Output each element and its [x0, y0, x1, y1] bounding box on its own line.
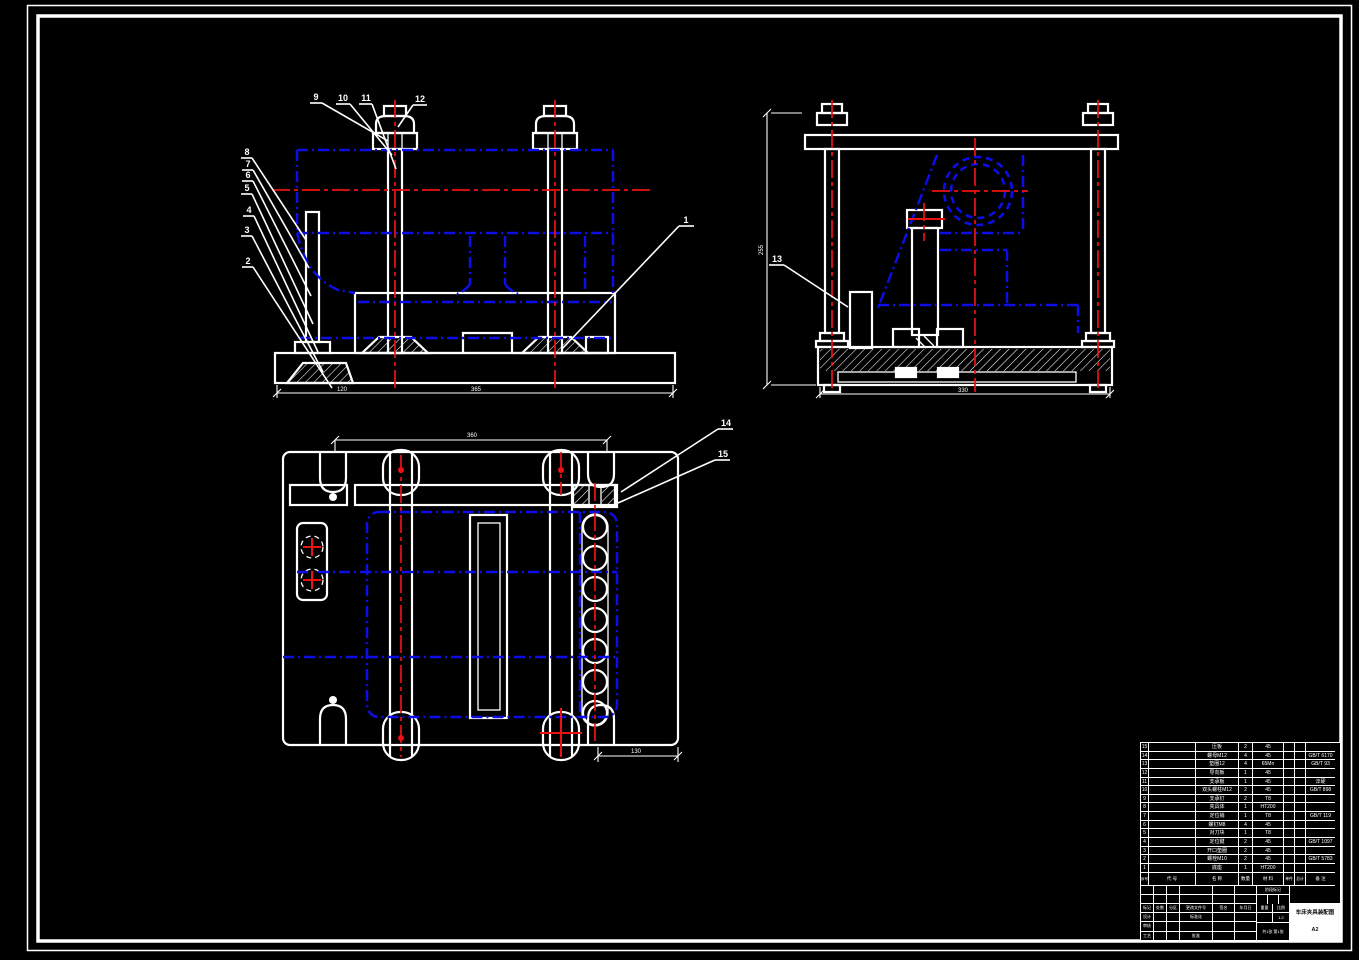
bom-header-total: 总计 [1295, 873, 1306, 886]
title-block-title-zone: 车床夹具装配图 A2 [1290, 886, 1340, 942]
plan-dim-width: 360 [467, 433, 478, 439]
bom-cell-qty: 4 [1239, 752, 1253, 761]
bom-cell-name: 双头螺柱M12 [1196, 786, 1239, 795]
bom-cell-remark [1306, 821, 1335, 830]
bom-cell-no: 12 [1141, 769, 1149, 778]
bom-cell-name: 底座 [1196, 864, 1239, 873]
bom-cell-total [1295, 829, 1306, 838]
bom-cell-remark [1306, 847, 1335, 856]
bom-cell-total [1295, 812, 1306, 821]
bom-cell-material: 45 [1253, 778, 1284, 787]
bom-cell-no: 5 [1141, 829, 1149, 838]
rev-mark: 标记 [1141, 904, 1154, 913]
bom-cell-no: 8 [1141, 803, 1149, 812]
role-standard: 标准化 [1180, 913, 1213, 922]
bom-cell-unit [1284, 786, 1295, 795]
drawing-title-box: 车床夹具装配图 [1290, 904, 1340, 921]
callout-15: 15 [718, 449, 728, 459]
bom-row: 12导向板145 [1141, 769, 1340, 778]
bom-cell-unit [1284, 795, 1295, 804]
bom-cell-unit [1284, 812, 1295, 821]
bom-cell-code [1149, 803, 1196, 812]
bom-cell-total [1295, 847, 1306, 856]
bom-cell-qty: 2 [1239, 855, 1253, 864]
bom-cell-qty: 2 [1239, 743, 1253, 752]
side-base [818, 347, 1112, 392]
bom-cell-total [1295, 821, 1306, 830]
bom-cell-no: 7 [1141, 812, 1149, 821]
callout-10: 10 [338, 93, 348, 103]
bom-cell-unit [1284, 864, 1295, 873]
side-dim-width: 330 [958, 388, 969, 394]
bom-cell-remark: 淬硬 [1306, 778, 1335, 787]
bom-cell-total [1295, 795, 1306, 804]
bom-cell-material: T8 [1253, 812, 1284, 821]
bom-cell-name: 开口垫圈 [1196, 847, 1239, 856]
bom-row: 7定位销1T8GB/T 119 [1141, 812, 1340, 821]
title-block: 标记 处数 分区 更改文件号 签名 年月日 设计 标准化 审核 工艺 [1141, 886, 1340, 942]
bom-cell-qty: 1 [1239, 778, 1253, 787]
bom-header-remark: 备 注 [1306, 873, 1335, 886]
bom-cell-no: 10 [1141, 786, 1149, 795]
bom-cell-material: T8 [1253, 829, 1284, 838]
bom-row: 8夹具体1HT200 [1141, 803, 1340, 812]
callout-1: 1 [683, 215, 688, 225]
side-dim-height: 255 [759, 244, 765, 255]
bom-cell-unit [1284, 821, 1295, 830]
bom-cell-unit [1284, 855, 1295, 864]
bom-cell-name: 定位键 [1196, 838, 1239, 847]
bom-cell-code [1149, 838, 1196, 847]
rev-sign: 签名 [1213, 904, 1235, 913]
bom-cell-qty: 2 [1239, 786, 1253, 795]
bom-cell-no: 15 [1141, 743, 1149, 752]
bom-cell-unit [1284, 829, 1295, 838]
bom-cell-name: 对刀块 [1196, 829, 1239, 838]
bom-cell-qty: 4 [1239, 821, 1253, 830]
bom-cell-name: 定位销 [1196, 812, 1239, 821]
bom-header-row: 序号 代 号 名 称 数量 材 料 单件 总计 备 注 [1141, 873, 1340, 886]
bom-cell-qty: 1 [1239, 829, 1253, 838]
bom-cell-unit [1284, 838, 1295, 847]
bom-cell-no: 1 [1141, 864, 1149, 873]
bom-cell-total [1295, 838, 1306, 847]
rev-date: 年月日 [1235, 904, 1257, 913]
bom-cell-remark: GB/T 93 [1306, 760, 1335, 769]
role-check: 审核 [1141, 922, 1154, 932]
stage-label: 阶段标记 [1257, 886, 1290, 895]
bom-cell-remark: GB/T 1097 [1306, 838, 1335, 847]
checker-row: 审核 [1141, 922, 1257, 932]
title-block-revision-grid: 标记 处数 分区 更改文件号 签名 年月日 设计 标准化 审核 工艺 [1141, 886, 1257, 942]
scale-value: 1:2 [1273, 913, 1290, 923]
bom-cell-remark: GB/T 119 [1306, 812, 1335, 821]
drawing-title: 车床夹具装配图 [1290, 904, 1340, 920]
bom-cell-code [1149, 760, 1196, 769]
callout-6: 6 [245, 170, 250, 180]
bom-and-title-block: 15压板24514螺母M12445GB/T 617013垫圈12465MnGB/… [1140, 742, 1341, 941]
bom-cell-qty: 1 [1239, 769, 1253, 778]
bom-cell-no: 11 [1141, 778, 1149, 787]
bom-cell-qty: 2 [1239, 838, 1253, 847]
bom-header-name: 名 称 [1196, 873, 1239, 886]
bom-row: 2螺栓M10245GB/T 5783 [1141, 855, 1340, 864]
sheet-size-box: A2 [1290, 921, 1340, 940]
callout-14: 14 [721, 418, 731, 428]
bom-row: 1底座1HT200 [1141, 864, 1340, 873]
bom-cell-material: 45 [1253, 752, 1284, 761]
bom-header-code: 代 号 [1149, 873, 1196, 886]
role-design: 设计 [1141, 913, 1154, 922]
bom-cell-code [1149, 786, 1196, 795]
bom-cell-name: 支承钉 [1196, 795, 1239, 804]
drawing-sheet: { "sheet": { "background": "#000000", "l… [0, 0, 1359, 960]
bom-cell-code [1149, 855, 1196, 864]
bom-cell-name: 螺钉M8 [1196, 821, 1239, 830]
callout-5: 5 [244, 183, 249, 193]
bom-cell-code [1149, 752, 1196, 761]
bom-cell-name: 支承板 [1196, 778, 1239, 787]
bom-row: 9支承钉2T8 [1141, 795, 1340, 804]
bom-cell-remark: GB/T 6170 [1306, 752, 1335, 761]
sheet-info: 共1张 第1张 [1257, 923, 1290, 942]
front-dim-b: 365 [471, 387, 482, 393]
sheet-size: A2 [1290, 921, 1340, 940]
bom-header-qty: 数量 [1239, 873, 1253, 886]
bom-cell-name: 压板 [1196, 743, 1239, 752]
bom-cell-material: HT200 [1253, 803, 1284, 812]
callout-4: 4 [246, 205, 251, 215]
bom-row: 13垫圈12465MnGB/T 93 [1141, 760, 1340, 769]
callout-13: 13 [772, 254, 782, 264]
bom-cell-total [1295, 786, 1306, 795]
bom-cell-name: 螺栓M10 [1196, 855, 1239, 864]
bom-cell-qty: 1 [1239, 803, 1253, 812]
bom-row: 5对刀块1T8 [1141, 829, 1340, 838]
bom-cell-material: 45 [1253, 769, 1284, 778]
callout-2: 2 [245, 256, 250, 266]
bom-cell-code [1149, 795, 1196, 804]
bom-cell-unit [1284, 769, 1295, 778]
bom-cell-code [1149, 847, 1196, 856]
bom-cell-remark [1306, 769, 1335, 778]
bom-cell-unit [1284, 847, 1295, 856]
role-process: 工艺 [1141, 932, 1154, 942]
bom-cell-total [1295, 743, 1306, 752]
bom-row: 14螺母M12445GB/T 6170 [1141, 752, 1340, 761]
bom-cell-code [1149, 769, 1196, 778]
bom-cell-total [1295, 769, 1306, 778]
bom-row: 15压板245 [1141, 743, 1340, 752]
front-dim-a: 120 [337, 387, 348, 393]
bom-cell-remark [1306, 795, 1335, 804]
bom-cell-name: 导向板 [1196, 769, 1239, 778]
designer-row: 设计 标准化 [1141, 913, 1257, 922]
bom-cell-material: 45 [1253, 855, 1284, 864]
bom-row: 10双头螺柱M12245GB/T 898 [1141, 786, 1340, 795]
weight-label: 重量 [1257, 904, 1273, 913]
process-row: 工艺 批准 [1141, 932, 1257, 942]
bom-cell-qty: 1 [1239, 864, 1253, 873]
bom-cell-total [1295, 864, 1306, 873]
bom-cell-code [1149, 829, 1196, 838]
role-approve: 批准 [1180, 932, 1213, 942]
bom-cell-remark [1306, 864, 1335, 873]
bom-cell-remark [1306, 829, 1335, 838]
bom-cell-code [1149, 821, 1196, 830]
bom-cell-remark: GB/T 5783 [1306, 855, 1335, 864]
bom-cell-unit [1284, 760, 1295, 769]
bom-cell-material: 45 [1253, 847, 1284, 856]
bom-cell-qty: 4 [1239, 760, 1253, 769]
bom-cell-code [1149, 812, 1196, 821]
bom-cell-remark [1306, 803, 1335, 812]
bom-cell-name: 夹具体 [1196, 803, 1239, 812]
bom-cell-material: T8 [1253, 795, 1284, 804]
callout-3: 3 [244, 225, 249, 235]
bom-cell-no: 6 [1141, 821, 1149, 830]
bom-cell-unit [1284, 778, 1295, 787]
revision-header-row: 标记 处数 分区 更改文件号 签名 年月日 [1141, 904, 1257, 913]
bom-cell-qty: 2 [1239, 847, 1253, 856]
bom-rows: 15压板24514螺母M12445GB/T 617013垫圈12465MnGB/… [1141, 743, 1340, 873]
bom-header-material: 材 料 [1253, 873, 1284, 886]
bom-cell-total [1295, 778, 1306, 787]
bom-cell-unit [1284, 743, 1295, 752]
bom-row: 3开口垫圈245 [1141, 847, 1340, 856]
bom-header-no: 序号 [1141, 873, 1149, 886]
bom-cell-no: 9 [1141, 795, 1149, 804]
bom-header-unit: 单件 [1284, 873, 1295, 886]
callout-11: 11 [361, 93, 371, 103]
callout-9: 9 [313, 92, 318, 102]
bom-cell-name: 螺母M12 [1196, 752, 1239, 761]
bom-cell-material: 45 [1253, 743, 1284, 752]
bom-cell-qty: 2 [1239, 795, 1253, 804]
bom-cell-code [1149, 864, 1196, 873]
bom-cell-unit [1284, 803, 1295, 812]
rev-count: 处数 [1154, 904, 1167, 913]
bom-cell-remark [1306, 743, 1335, 752]
bom-cell-total [1295, 752, 1306, 761]
bom-cell-no: 14 [1141, 752, 1149, 761]
bom-cell-code [1149, 743, 1196, 752]
bom-cell-code [1149, 778, 1196, 787]
bom-cell-total [1295, 760, 1306, 769]
weight-value [1257, 913, 1273, 923]
bom-cell-no: 13 [1141, 760, 1149, 769]
bom-cell-total [1295, 855, 1306, 864]
callout-7: 7 [245, 159, 250, 169]
rev-doc: 更改文件号 [1180, 904, 1213, 913]
bom-cell-no: 3 [1141, 847, 1149, 856]
bom-cell-no: 4 [1141, 838, 1149, 847]
scale-label: 比例 [1273, 904, 1290, 913]
bom-cell-total [1295, 803, 1306, 812]
bom-cell-material: 45 [1253, 786, 1284, 795]
bom-cell-material: 65Mn [1253, 760, 1284, 769]
drawing-number-box [1290, 886, 1340, 904]
callout-8: 8 [244, 147, 249, 157]
bom-row: 6螺钉M8445 [1141, 821, 1340, 830]
bom-cell-qty: 1 [1239, 812, 1253, 821]
bom-row: 4定位键245GB/T 1097 [1141, 838, 1340, 847]
rev-zone: 分区 [1167, 904, 1180, 913]
plan-dim-b: 130 [631, 749, 642, 755]
title-block-stage: 阶段标记 重量 比例 1:2 共1张 第1张 [1257, 886, 1290, 942]
bom-row: 11支承板145淬硬 [1141, 778, 1340, 787]
bom-cell-material: 45 [1253, 838, 1284, 847]
bom-cell-remark: GB/T 898 [1306, 786, 1335, 795]
bom-cell-name: 垫圈12 [1196, 760, 1239, 769]
bom-cell-unit [1284, 752, 1295, 761]
bom-cell-material: HT200 [1253, 864, 1284, 873]
callout-12: 12 [415, 94, 425, 104]
bom-cell-no: 2 [1141, 855, 1149, 864]
bom-cell-material: 45 [1253, 821, 1284, 830]
